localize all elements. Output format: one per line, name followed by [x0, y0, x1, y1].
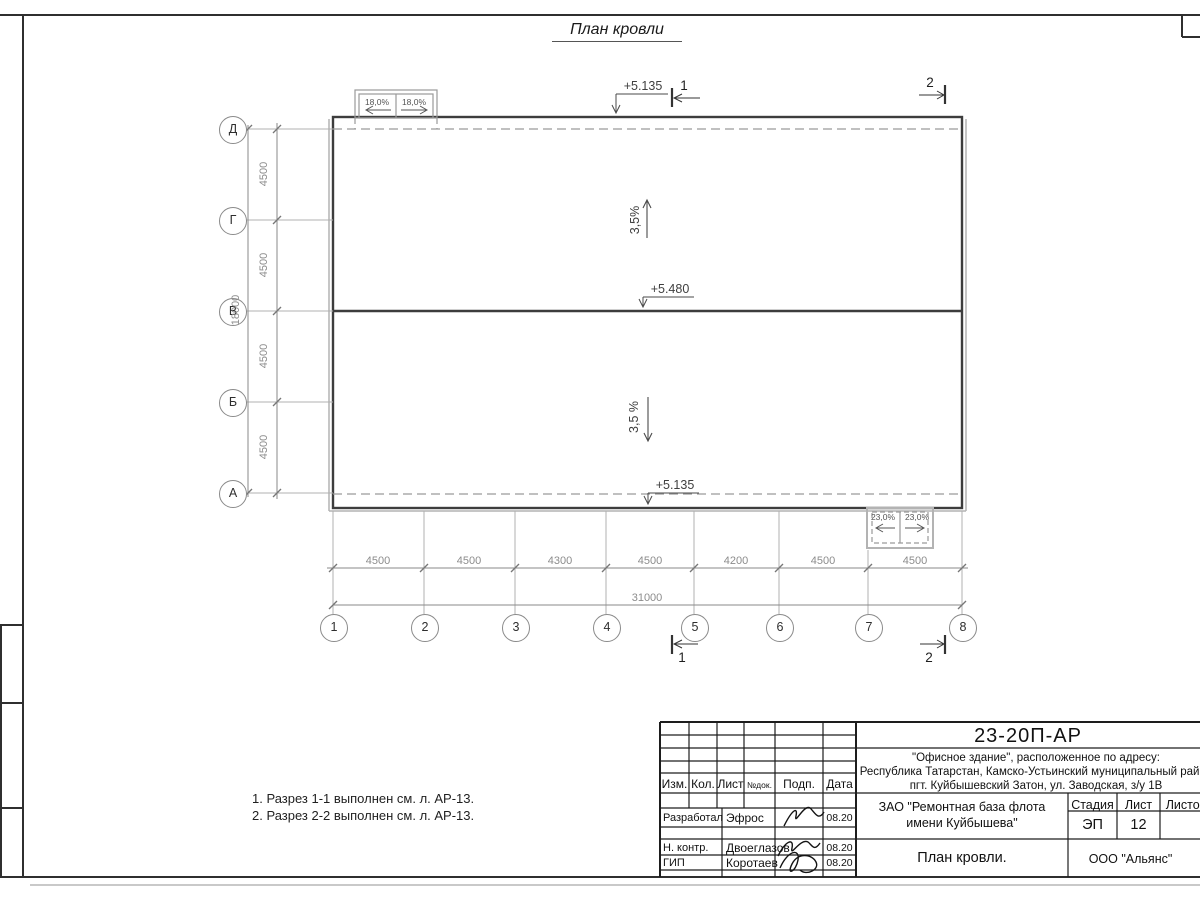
tb-col-list: Лист: [717, 777, 744, 791]
signature: [784, 808, 824, 826]
axis-bubble-col-8: 8: [949, 614, 977, 642]
tb-stage-label: Стадия: [1068, 797, 1117, 813]
roof-outline: [329, 117, 966, 511]
slope-lower-label: 3,5 %: [627, 395, 641, 439]
dim-total-v: 18000: [230, 288, 242, 332]
section-1-top-label: 1: [676, 78, 692, 93]
slope-arrows: [643, 200, 652, 441]
axis-bubble-col-5: 5: [681, 614, 709, 642]
canopy-bottom-left-label: 23,0%: [865, 512, 901, 522]
drawing-notes: 1. Разрез 1-1 выполнен см. л. АР-13. 2. …: [252, 790, 474, 824]
axis-bubble-row-b: Б: [219, 389, 247, 417]
elevation-top-label: +5.135: [618, 79, 668, 93]
dim-span-v-3: 4500: [258, 334, 270, 378]
tb-date-ncontrol: 08.20: [823, 842, 856, 854]
axis-bubble-row-d: Д: [219, 116, 247, 144]
canopy-top-right-label: 18,0%: [396, 97, 432, 107]
tb-name-gip: Коротаев: [726, 856, 778, 870]
axis-bubble-col-2: 2: [411, 614, 439, 642]
note-line: 1. Разрез 1-1 выполнен см. л. АР-13.: [252, 790, 474, 807]
tb-date-developer: 08.20: [823, 812, 856, 824]
dim-span-v-2: 4500: [258, 243, 270, 287]
dim-span-h-6: 4500: [801, 555, 845, 567]
canopy-bottom-right-label: 23,0%: [899, 512, 935, 522]
section-1-bottom-label: 1: [674, 650, 690, 665]
tb-role-ncontrol: Н. контр.: [663, 842, 708, 854]
titleblock-address: "Офисное здание", расположенное по адрес…: [856, 751, 1200, 793]
tb-sheet-value: 12: [1117, 817, 1160, 833]
titleblock-doc-number: 23-20П-АР: [856, 725, 1200, 748]
address-line: "Офисное здание", расположенное по адрес…: [856, 751, 1200, 765]
elevation-ridge-label: +5.480: [645, 282, 695, 296]
tb-role-gip: ГИП: [663, 857, 685, 869]
tb-role-developer: Разработал: [663, 812, 723, 824]
slope-upper-label: 3,5%: [628, 198, 642, 242]
dim-span-h-1: 4500: [356, 555, 400, 567]
tb-col-kol: Кол.: [689, 777, 717, 791]
axis-bubble-col-7: 7: [855, 614, 883, 642]
tb-col-ndok: №док.: [744, 780, 775, 790]
dim-total-h: 31000: [625, 592, 669, 604]
tb-drawing-title: План кровли.: [856, 850, 1068, 866]
elevation-bottom-label: +5.135: [650, 478, 700, 492]
dim-span-v-1: 4500: [258, 152, 270, 196]
section-2-top-label: 2: [922, 75, 938, 90]
tb-date-gip: 08.20: [823, 857, 856, 869]
drawing-sheet: План кровли Д Г В Б А 1 2 3 4 5 6 7 8 45…: [0, 0, 1200, 900]
section-marks: [672, 85, 945, 654]
axis-bubble-row-g: Г: [219, 207, 247, 235]
grid-lines: [246, 129, 962, 614]
signatures: [778, 808, 824, 873]
tb-name-developer: Эфрос: [726, 811, 764, 825]
dim-span-h-7: 4500: [893, 555, 937, 567]
tb-name-ncontrol: Двоеглазов: [726, 841, 790, 855]
address-line: Республика Татарстан, Камско-Устьинский …: [856, 765, 1200, 779]
sheet-title: План кровли: [552, 21, 682, 42]
tb-col-podp: Подп.: [775, 777, 823, 791]
dimension-ticks: [244, 125, 966, 609]
axis-bubble-row-a: А: [219, 480, 247, 508]
dim-span-h-2: 4500: [447, 555, 491, 567]
dim-span-h-3: 4300: [538, 555, 582, 567]
tb-stage-value: ЭП: [1068, 817, 1117, 833]
axis-bubble-col-3: 3: [502, 614, 530, 642]
axis-bubble-col-6: 6: [766, 614, 794, 642]
dim-span-h-5: 4200: [714, 555, 758, 567]
dim-span-v-4: 4500: [258, 425, 270, 469]
canopy-top-left-label: 18,0%: [359, 97, 395, 107]
dimension-lines: [248, 123, 968, 605]
tb-sheet-label: Лист: [1117, 797, 1160, 813]
tb-col-data: Дата: [823, 777, 856, 791]
note-line: 2. Разрез 2-2 выполнен см. л. АР-13.: [252, 807, 474, 824]
client-line: ЗАО "Ремонтная база флота: [856, 799, 1068, 815]
section-2-bottom-label: 2: [921, 650, 937, 665]
elevation-marks: [612, 94, 699, 504]
address-line: пгт. Куйбышевский Затон, ул. Заводская, …: [856, 779, 1200, 793]
axis-bubble-col-4: 4: [593, 614, 621, 642]
tb-client: ЗАО "Ремонтная база флота имени Куйбышев…: [856, 799, 1068, 831]
client-line: имени Куйбышева": [856, 815, 1068, 831]
dim-span-h-4: 4500: [628, 555, 672, 567]
axis-bubble-col-1: 1: [320, 614, 348, 642]
tb-sheets-label: Листов: [1160, 797, 1200, 813]
tb-col-izm: Изм.: [660, 777, 689, 791]
tb-org: ООО "Альянс": [1058, 851, 1200, 867]
